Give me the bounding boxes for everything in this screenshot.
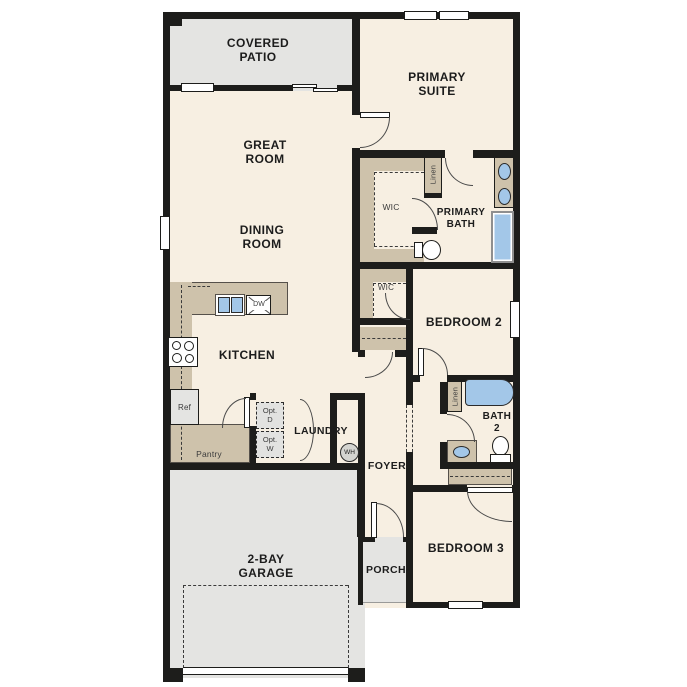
label-kitchen-text: KITCHEN	[219, 348, 275, 362]
wall-hall-b	[406, 452, 413, 608]
label-great-room-1: GREAT	[243, 138, 286, 152]
label-primary-linen-text: Linen	[429, 165, 438, 184]
label-bedroom2: BEDROOM 2	[414, 315, 514, 329]
primary-suite-window-1	[404, 11, 437, 20]
primary-wic-shelf-top	[360, 158, 424, 171]
label-bath2: BATH 2	[477, 411, 517, 435]
primary-suite-window-2	[439, 11, 469, 20]
wall-level2	[352, 262, 520, 269]
refrigerator: Ref	[170, 389, 199, 425]
label-primary-linen: Linen	[429, 160, 438, 190]
garage-door	[183, 667, 348, 675]
counter-dash-top	[188, 286, 210, 287]
bath2-sink	[453, 446, 470, 458]
label-bedroom2-wic-text: WIC	[378, 283, 394, 292]
label-garage-1: 2-BAY	[248, 552, 285, 566]
water-heater-label: WH	[344, 449, 355, 456]
patio-slider-2	[313, 88, 338, 92]
primary-wic-shelf-left	[360, 158, 374, 262]
label-bedroom2-text: BEDROOM 2	[426, 315, 502, 329]
bath2-tub	[465, 379, 514, 406]
primary-wic-dash-left	[374, 172, 375, 246]
kitchen-sink-bowl-left	[218, 297, 230, 313]
garage-door-track-top	[183, 585, 348, 586]
kitchen-sink-bowl-right	[231, 297, 243, 313]
label-laundry-text: LAUNDRY	[294, 425, 348, 437]
label-garage: 2-BAY GARAGE	[216, 552, 316, 580]
dishwasher: DW	[246, 295, 271, 315]
label-bedroom2-wic: WIC	[371, 283, 401, 292]
wall-hall-a	[406, 268, 413, 405]
garage-door-track-right	[348, 585, 349, 668]
label-primary-wic: WIC	[376, 202, 406, 212]
label-bedroom3-text: BEDROOM 3	[428, 541, 504, 555]
refrigerator-label: Ref	[178, 403, 191, 412]
optional-washer: Opt. W	[256, 431, 284, 458]
wall-garage-right	[357, 463, 365, 537]
label-bath2-1: BATH	[483, 411, 512, 423]
label-hall-linen-text: Linen	[451, 387, 460, 406]
label-great-room-2: ROOM	[246, 152, 285, 166]
label-covered-patio-1: COVERED	[227, 36, 289, 50]
label-foyer-text: FOYER	[368, 460, 406, 472]
label-porch-text: PORCH	[366, 564, 406, 576]
label-garage-2: GARAGE	[238, 566, 293, 580]
garage-door-track-left	[183, 585, 184, 668]
wall-bath2-left-a	[440, 382, 447, 414]
label-covered-patio-2: PATIO	[240, 50, 277, 64]
label-primary-bath: PRIMARY BATH	[421, 207, 501, 231]
hall-opening-dash-1	[406, 405, 407, 452]
stove	[168, 337, 198, 367]
wall-porch-left	[358, 537, 363, 605]
label-primary-suite-2: SUITE	[418, 84, 455, 98]
patio-corner-block	[163, 12, 182, 26]
wall-garage-top	[163, 463, 365, 470]
wall-closet3-b	[512, 485, 520, 492]
label-primary-bath-1: PRIMARY	[437, 207, 486, 219]
label-kitchen: KITCHEN	[197, 348, 297, 362]
wall-closet-div-c	[395, 350, 412, 357]
coat-closet-rod-dash	[362, 338, 406, 339]
optional-dryer: Opt. D	[256, 402, 284, 429]
primary-sink-2	[498, 188, 511, 205]
wall-closet-div-b	[358, 350, 365, 357]
bath2-toilet-bowl	[492, 436, 509, 456]
wall-bed3-a	[413, 602, 450, 608]
opt-d-line2: D	[267, 416, 272, 425]
counter-dash	[181, 285, 182, 460]
garage-corner-left	[163, 668, 183, 682]
opt-w-line2: W	[266, 445, 273, 454]
wall-closet3-a	[406, 485, 467, 492]
label-pantry: Pantry	[189, 449, 229, 459]
wall-suite-a	[352, 150, 445, 158]
wall-patio-b	[213, 85, 293, 91]
wall-bath2-bottom	[440, 462, 520, 469]
label-hall-linen: Linen	[451, 382, 460, 412]
wall-laundry-door-top	[250, 393, 256, 400]
label-dining-room: DINING ROOM	[212, 223, 312, 251]
wall-patio-a	[163, 85, 182, 91]
wall-bed3-b	[482, 602, 520, 608]
label-great-room: GREAT ROOM	[215, 138, 315, 166]
label-bedroom3: BEDROOM 3	[416, 541, 516, 555]
primary-wic-dash-top	[374, 172, 424, 173]
hall-opening-dash-2	[412, 405, 413, 452]
wall-linen1-stub	[424, 193, 442, 198]
label-foyer: FOYER	[366, 460, 408, 472]
wall-foyer-left	[358, 393, 365, 463]
wall-center-a	[352, 12, 360, 115]
label-primary-bath-2: BATH	[447, 219, 476, 231]
label-primary-suite-1: PRIMARY	[408, 70, 466, 84]
label-primary-wic-text: WIC	[382, 202, 399, 212]
water-heater: WH	[340, 443, 359, 462]
bedroom3-closet-rod-dash	[450, 476, 510, 477]
primary-toilet-bowl	[422, 240, 441, 260]
label-covered-patio: COVERED PATIO	[208, 36, 308, 64]
label-dining-room-2: ROOM	[243, 237, 282, 251]
floor-plan: DW Ref Opt. D Opt. W WH COVERED PATIO GR…	[0, 0, 687, 687]
wall-porch-b	[403, 537, 413, 542]
kitchen-sink	[215, 294, 245, 316]
garage-corner-right	[348, 668, 365, 682]
wall-suite-b	[473, 150, 520, 158]
primary-sink-1	[498, 163, 511, 180]
bath2-toilet-tank	[490, 454, 511, 463]
bedroom3-window	[448, 601, 483, 609]
bedroom2-wic-shelf-left	[360, 268, 373, 320]
dining-window	[160, 216, 170, 250]
label-bath2-2: 2	[494, 423, 500, 435]
label-primary-suite: PRIMARY SUITE	[387, 70, 487, 98]
label-laundry: LAUNDRY	[292, 425, 350, 437]
label-pantry-text: Pantry	[196, 449, 222, 459]
label-porch: PORCH	[364, 564, 408, 576]
patio-window	[181, 83, 214, 92]
dishwasher-label: DW	[250, 301, 268, 310]
label-dining-room-1: DINING	[240, 223, 284, 237]
